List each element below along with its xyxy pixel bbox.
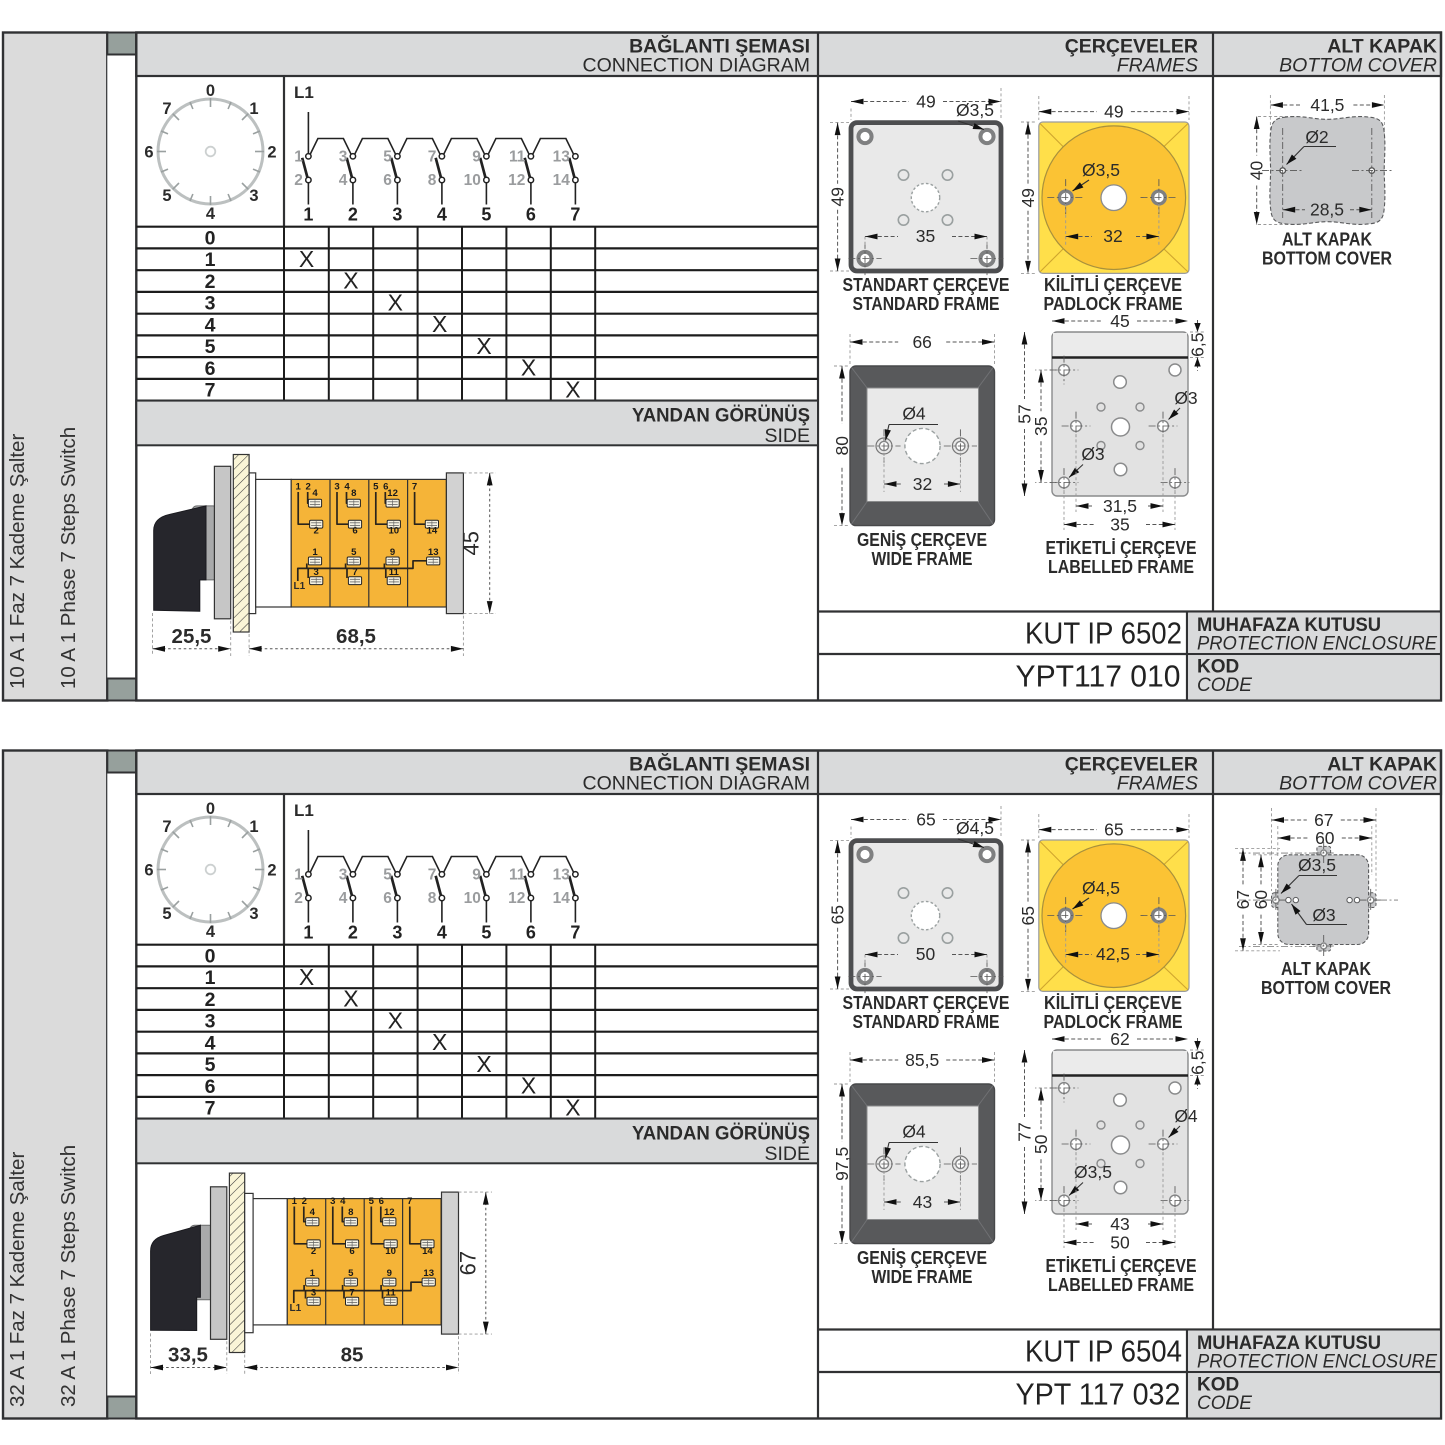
svg-text:43: 43 <box>1110 1214 1129 1234</box>
svg-text:4: 4 <box>206 205 216 223</box>
svg-text:L1: L1 <box>290 1303 302 1314</box>
svg-text:11: 11 <box>509 866 526 883</box>
svg-text:WIDE FRAME: WIDE FRAME <box>872 1267 973 1287</box>
svg-text:25,5: 25,5 <box>172 625 212 648</box>
svg-text:2: 2 <box>306 482 311 493</box>
svg-text:8: 8 <box>428 890 437 907</box>
svg-text:1: 1 <box>310 1268 316 1279</box>
svg-text:3: 3 <box>339 866 348 883</box>
svg-text:2: 2 <box>205 989 216 1011</box>
svg-text:X: X <box>521 1073 536 1099</box>
svg-text:5: 5 <box>481 923 491 943</box>
svg-text:5: 5 <box>205 1054 216 1076</box>
svg-text:BOTTOM COVER: BOTTOM COVER <box>1261 978 1391 998</box>
svg-text:49: 49 <box>916 92 935 112</box>
svg-text:1: 1 <box>294 148 303 165</box>
svg-text:5: 5 <box>348 1268 354 1279</box>
svg-text:7: 7 <box>407 1196 412 1207</box>
svg-text:SIDE: SIDE <box>764 425 810 447</box>
svg-text:5: 5 <box>383 866 392 883</box>
svg-text:3: 3 <box>392 205 402 225</box>
svg-text:3: 3 <box>205 1011 216 1033</box>
svg-text:35: 35 <box>1031 416 1051 435</box>
svg-text:12: 12 <box>387 488 398 499</box>
svg-text:2: 2 <box>302 1196 307 1207</box>
svg-text:1: 1 <box>205 967 216 989</box>
svg-text:2: 2 <box>348 923 358 943</box>
svg-text:49: 49 <box>1018 188 1038 207</box>
svg-text:50: 50 <box>1031 1134 1051 1154</box>
svg-text:STANDART ÇERÇEVE: STANDART ÇERÇEVE <box>843 275 1010 295</box>
svg-text:BOTTOM COVER: BOTTOM COVER <box>1262 249 1392 269</box>
svg-text:6: 6 <box>383 890 392 907</box>
svg-text:GENİŞ ÇERÇEVE: GENİŞ ÇERÇEVE <box>857 1248 987 1268</box>
svg-text:5: 5 <box>481 205 491 225</box>
svg-text:8: 8 <box>428 172 437 189</box>
svg-text:3: 3 <box>334 482 339 493</box>
svg-text:STANDARD FRAME: STANDARD FRAME <box>853 294 1000 314</box>
svg-text:9: 9 <box>472 148 481 165</box>
svg-text:ALT KAPAK: ALT KAPAK <box>1281 959 1371 979</box>
svg-text:14: 14 <box>422 1246 433 1257</box>
svg-text:7: 7 <box>570 923 580 943</box>
svg-text:LABELLED FRAME: LABELLED FRAME <box>1048 557 1194 577</box>
svg-text:STANDARD FRAME: STANDARD FRAME <box>853 1012 1000 1032</box>
svg-text:7: 7 <box>428 148 437 165</box>
svg-text:85: 85 <box>341 1344 364 1367</box>
svg-text:Ø3,5: Ø3,5 <box>1082 160 1120 180</box>
svg-text:66: 66 <box>912 332 931 352</box>
svg-text:62: 62 <box>1110 1029 1129 1049</box>
svg-text:7: 7 <box>428 866 437 883</box>
svg-text:14: 14 <box>427 526 438 537</box>
svg-text:Ø3,5: Ø3,5 <box>956 100 994 120</box>
svg-text:5: 5 <box>383 148 392 165</box>
svg-text:2: 2 <box>348 205 358 225</box>
svg-text:7: 7 <box>570 205 580 225</box>
svg-text:5: 5 <box>205 336 216 358</box>
svg-text:L1: L1 <box>294 581 306 592</box>
svg-text:Ø2: Ø2 <box>1305 127 1328 147</box>
svg-text:3: 3 <box>311 1288 316 1299</box>
svg-text:Ø3,5: Ø3,5 <box>1298 855 1336 875</box>
svg-text:65: 65 <box>1018 906 1038 925</box>
svg-text:L1: L1 <box>294 83 314 102</box>
svg-text:LABELLED FRAME: LABELLED FRAME <box>1048 1275 1194 1295</box>
svg-text:28,5: 28,5 <box>1310 200 1344 220</box>
svg-text:43: 43 <box>913 1192 932 1212</box>
svg-text:GENİŞ ÇERÇEVE: GENİŞ ÇERÇEVE <box>857 530 987 550</box>
svg-text:0: 0 <box>205 228 216 250</box>
svg-text:KUT IP 6502: KUT IP 6502 <box>1025 616 1182 651</box>
svg-text:49: 49 <box>1104 102 1123 122</box>
svg-text:KUT IP 6504: KUT IP 6504 <box>1025 1334 1182 1369</box>
svg-text:ETİKETLİ ÇERÇEVE: ETİKETLİ ÇERÇEVE <box>1046 538 1197 558</box>
svg-text:5: 5 <box>369 1196 375 1207</box>
svg-text:Ø4: Ø4 <box>902 404 926 424</box>
svg-text:5: 5 <box>162 187 171 205</box>
svg-text:BOTTOM COVER: BOTTOM COVER <box>1279 55 1437 77</box>
svg-text:3: 3 <box>205 293 216 315</box>
svg-text:FRAMES: FRAMES <box>1117 773 1198 795</box>
svg-text:6: 6 <box>205 358 216 380</box>
svg-text:CODE: CODE <box>1197 675 1252 696</box>
svg-text:PROTECTION ENCLOSURE: PROTECTION ENCLOSURE <box>1197 634 1437 655</box>
svg-text:ETİKETLİ ÇERÇEVE: ETİKETLİ ÇERÇEVE <box>1046 1256 1197 1276</box>
svg-text:0: 0 <box>206 800 215 818</box>
svg-text:Ø3: Ø3 <box>1312 905 1335 925</box>
svg-text:68,5: 68,5 <box>336 625 376 648</box>
svg-text:X: X <box>565 1094 580 1120</box>
svg-text:L1: L1 <box>294 801 314 820</box>
svg-text:85,5: 85,5 <box>905 1050 939 1070</box>
svg-text:10 A 1 Faz 7 Kademe Şalter: 10 A 1 Faz 7 Kademe Şalter <box>6 434 29 689</box>
svg-text:8: 8 <box>348 1207 354 1218</box>
svg-text:2: 2 <box>311 1246 316 1257</box>
svg-text:6: 6 <box>144 143 153 161</box>
svg-text:CODE: CODE <box>1197 1393 1252 1414</box>
svg-text:13: 13 <box>428 547 439 558</box>
svg-text:Ø4,5: Ø4,5 <box>956 818 994 838</box>
svg-text:X: X <box>388 1007 403 1033</box>
svg-text:X: X <box>521 355 536 381</box>
svg-text:6,5: 6,5 <box>1188 333 1208 357</box>
svg-text:3: 3 <box>330 1196 335 1207</box>
svg-text:2: 2 <box>314 526 319 537</box>
svg-text:80: 80 <box>832 436 852 456</box>
svg-text:6: 6 <box>526 923 536 943</box>
svg-text:9: 9 <box>390 547 395 558</box>
svg-text:Ø4: Ø4 <box>902 1122 926 1142</box>
svg-text:12: 12 <box>508 890 525 907</box>
svg-text:6: 6 <box>526 205 536 225</box>
svg-text:32: 32 <box>1103 226 1122 246</box>
svg-text:1: 1 <box>312 547 318 558</box>
svg-text:X: X <box>432 1029 447 1055</box>
svg-text:5: 5 <box>351 547 357 558</box>
svg-text:WIDE FRAME: WIDE FRAME <box>872 549 973 569</box>
svg-text:4: 4 <box>312 488 318 499</box>
svg-text:5: 5 <box>162 905 171 923</box>
svg-text:13: 13 <box>553 866 571 883</box>
svg-text:11: 11 <box>386 1288 397 1299</box>
svg-text:YPT117 010: YPT117 010 <box>1016 659 1181 694</box>
svg-text:1: 1 <box>303 205 313 225</box>
svg-text:X: X <box>432 311 447 337</box>
svg-text:7: 7 <box>349 1288 354 1299</box>
svg-text:CONNECTION DIAGRAM: CONNECTION DIAGRAM <box>582 773 810 795</box>
svg-text:1: 1 <box>205 249 216 271</box>
svg-text:67: 67 <box>456 1251 481 1275</box>
svg-text:6: 6 <box>349 1246 354 1257</box>
svg-text:SIDE: SIDE <box>764 1143 810 1165</box>
svg-text:FRAMES: FRAMES <box>1117 55 1198 77</box>
svg-text:6: 6 <box>383 172 392 189</box>
svg-text:35: 35 <box>916 226 935 246</box>
svg-text:65: 65 <box>1104 820 1123 840</box>
svg-text:0: 0 <box>205 946 216 968</box>
svg-text:STANDART ÇERÇEVE: STANDART ÇERÇEVE <box>843 993 1010 1013</box>
svg-text:4: 4 <box>339 890 348 907</box>
svg-text:11: 11 <box>389 567 400 578</box>
svg-text:7: 7 <box>162 100 171 118</box>
svg-text:10: 10 <box>464 890 481 907</box>
svg-text:4: 4 <box>310 1207 316 1218</box>
svg-text:7: 7 <box>205 380 216 402</box>
svg-text:ALT KAPAK: ALT KAPAK <box>1282 230 1372 250</box>
svg-text:2: 2 <box>267 861 276 879</box>
svg-text:13: 13 <box>553 148 571 165</box>
svg-text:4: 4 <box>339 172 348 189</box>
svg-text:3: 3 <box>249 905 258 923</box>
svg-text:X: X <box>299 246 314 272</box>
svg-text:5: 5 <box>373 482 379 493</box>
svg-text:0: 0 <box>206 82 215 100</box>
svg-text:Ø4: Ø4 <box>1174 1106 1198 1126</box>
svg-text:7: 7 <box>205 1098 216 1120</box>
svg-text:X: X <box>476 1051 491 1077</box>
svg-text:4: 4 <box>437 205 447 225</box>
svg-text:35: 35 <box>1110 515 1129 535</box>
svg-text:1: 1 <box>249 818 258 836</box>
svg-text:41,5: 41,5 <box>1310 95 1344 115</box>
svg-text:60: 60 <box>1251 890 1271 910</box>
svg-text:7: 7 <box>162 818 171 836</box>
svg-text:50: 50 <box>916 944 936 964</box>
svg-text:14: 14 <box>553 890 571 907</box>
svg-text:X: X <box>299 964 314 990</box>
svg-text:42,5: 42,5 <box>1096 944 1130 964</box>
svg-text:X: X <box>476 333 491 359</box>
svg-text:Ø3: Ø3 <box>1174 388 1197 408</box>
svg-text:1: 1 <box>303 923 313 943</box>
svg-text:50: 50 <box>1110 1233 1130 1253</box>
svg-text:Ø3: Ø3 <box>1081 444 1104 464</box>
svg-text:6,5: 6,5 <box>1188 1051 1208 1075</box>
svg-text:10: 10 <box>388 526 399 537</box>
svg-text:97,5: 97,5 <box>832 1147 852 1181</box>
svg-text:60: 60 <box>1315 828 1335 848</box>
svg-text:14: 14 <box>553 172 571 189</box>
svg-text:Ø4,5: Ø4,5 <box>1082 878 1120 898</box>
svg-text:6: 6 <box>379 1196 384 1207</box>
svg-text:10: 10 <box>464 172 481 189</box>
svg-text:1: 1 <box>292 1196 298 1207</box>
svg-text:4: 4 <box>205 315 216 337</box>
svg-text:6: 6 <box>205 1076 216 1098</box>
svg-text:YANDAN GÖRÜNÜŞ: YANDAN GÖRÜNÜŞ <box>632 1122 810 1145</box>
svg-text:4: 4 <box>340 1196 346 1207</box>
svg-text:4: 4 <box>206 923 216 941</box>
svg-text:CONNECTION DIAGRAM: CONNECTION DIAGRAM <box>582 55 810 77</box>
svg-text:7: 7 <box>352 567 357 578</box>
svg-text:33,5: 33,5 <box>168 1344 208 1367</box>
svg-text:6: 6 <box>352 526 357 537</box>
svg-text:67: 67 <box>1233 890 1253 909</box>
svg-text:3: 3 <box>249 187 258 205</box>
svg-text:6: 6 <box>144 861 153 879</box>
svg-text:Ø3,5: Ø3,5 <box>1074 1162 1112 1182</box>
svg-text:10 A 1 Phase 7 Steps Switch: 10 A 1 Phase 7 Steps Switch <box>57 427 80 689</box>
svg-text:4: 4 <box>437 923 447 943</box>
svg-text:32 A 1 Faz 7 Kademe Şalter: 32 A 1 Faz 7 Kademe Şalter <box>6 1152 29 1407</box>
svg-text:X: X <box>565 376 580 402</box>
svg-text:11: 11 <box>509 148 526 165</box>
svg-text:KİLİTLİ ÇERÇEVE: KİLİTLİ ÇERÇEVE <box>1044 275 1182 295</box>
svg-text:32: 32 <box>913 474 932 494</box>
svg-text:10: 10 <box>385 1246 396 1257</box>
svg-text:32 A 1 Phase 7 Steps Switch: 32 A 1 Phase 7 Steps Switch <box>57 1145 80 1407</box>
svg-text:1: 1 <box>296 482 302 493</box>
svg-text:X: X <box>343 268 358 294</box>
svg-text:45: 45 <box>1110 311 1129 331</box>
svg-text:49: 49 <box>827 187 847 206</box>
svg-text:PROTECTION ENCLOSURE: PROTECTION ENCLOSURE <box>1197 1352 1437 1373</box>
svg-text:45: 45 <box>459 531 484 555</box>
svg-text:3: 3 <box>339 148 348 165</box>
svg-text:YPT 117 032: YPT 117 032 <box>1016 1377 1181 1412</box>
svg-text:12: 12 <box>384 1207 395 1218</box>
svg-text:2: 2 <box>205 271 216 293</box>
svg-text:3: 3 <box>392 923 402 943</box>
svg-text:2: 2 <box>267 143 276 161</box>
svg-text:9: 9 <box>472 866 481 883</box>
svg-text:13: 13 <box>423 1268 434 1279</box>
svg-text:31,5: 31,5 <box>1103 496 1137 516</box>
svg-text:9: 9 <box>387 1268 392 1279</box>
svg-text:X: X <box>343 986 358 1012</box>
svg-text:7: 7 <box>412 482 417 493</box>
svg-text:3: 3 <box>314 567 319 578</box>
svg-text:65: 65 <box>916 810 935 830</box>
svg-text:65: 65 <box>827 905 847 924</box>
svg-text:2: 2 <box>294 172 303 189</box>
svg-text:1: 1 <box>294 866 303 883</box>
svg-text:BOTTOM COVER: BOTTOM COVER <box>1279 773 1437 795</box>
svg-text:1: 1 <box>249 100 258 118</box>
svg-text:67: 67 <box>1314 810 1333 830</box>
svg-text:2: 2 <box>294 890 303 907</box>
svg-text:12: 12 <box>508 172 525 189</box>
svg-text:X: X <box>388 289 403 315</box>
svg-text:KİLİTLİ ÇERÇEVE: KİLİTLİ ÇERÇEVE <box>1044 993 1182 1013</box>
svg-text:4: 4 <box>205 1033 216 1055</box>
svg-text:8: 8 <box>351 488 357 499</box>
svg-text:YANDAN GÖRÜNÜŞ: YANDAN GÖRÜNÜŞ <box>632 404 810 427</box>
svg-text:4: 4 <box>344 482 350 493</box>
